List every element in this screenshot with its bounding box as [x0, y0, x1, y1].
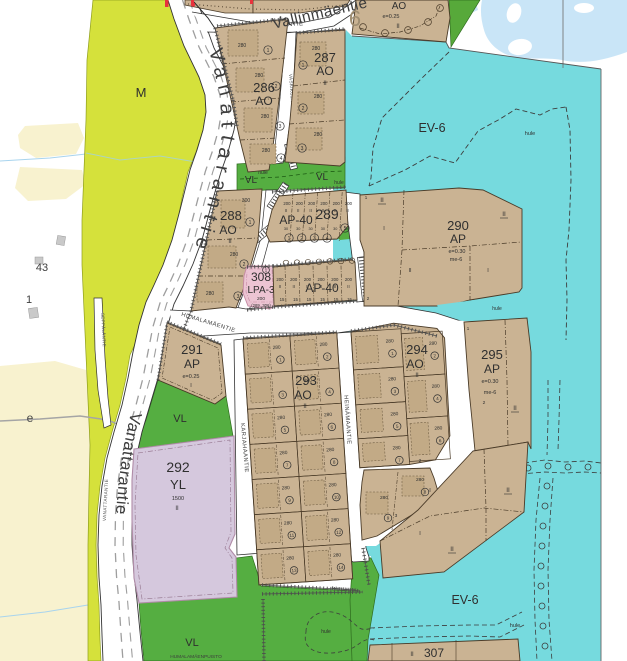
svg-text:13: 13 [291, 568, 297, 573]
svg-text:YL: YL [170, 477, 186, 492]
svg-text:II: II [506, 487, 510, 494]
svg-text:300: 300 [242, 198, 251, 204]
svg-text:8: 8 [424, 490, 427, 495]
svg-text:EV-6: EV-6 [418, 121, 445, 135]
svg-text:AO: AO [294, 388, 311, 402]
svg-text:295: 295 [481, 347, 503, 362]
svg-text:280: 280 [416, 477, 424, 483]
svg-text:II: II [502, 211, 506, 218]
svg-text:280: 280 [238, 43, 247, 49]
svg-text:280: 280 [319, 342, 328, 349]
svg-text:280: 280 [284, 520, 293, 527]
svg-text:hule: hule [321, 629, 331, 635]
svg-text:280: 280 [230, 252, 239, 258]
svg-text:II: II [408, 268, 412, 274]
svg-text:3: 3 [313, 236, 316, 242]
svg-text:280: 280 [328, 482, 337, 489]
svg-text:280: 280 [262, 148, 271, 154]
svg-text:280: 280 [206, 291, 215, 297]
svg-text:289: 289 [315, 206, 339, 222]
svg-text:280: 280 [324, 412, 333, 419]
svg-text:15: 15 [293, 297, 298, 302]
svg-text:30: 30 [308, 227, 312, 231]
svg-text:280: 280 [331, 517, 340, 524]
svg-text:280: 280 [434, 425, 443, 432]
svg-text:e=0.25: e=0.25 [383, 14, 400, 20]
svg-text:AP: AP [450, 232, 466, 246]
svg-text:VL: VL [245, 175, 258, 186]
svg-text:11: 11 [289, 533, 295, 538]
svg-text:15: 15 [307, 297, 312, 302]
svg-text:280: 280 [272, 345, 281, 352]
svg-text:4: 4 [326, 236, 329, 242]
svg-text:280: 280 [392, 445, 401, 452]
svg-text:me-6: me-6 [450, 257, 463, 263]
svg-text:1: 1 [267, 48, 270, 54]
svg-text:EV-6: EV-6 [451, 593, 478, 607]
svg-text:II: II [450, 546, 454, 553]
svg-text:30: 30 [296, 227, 300, 231]
svg-text:M: M [136, 85, 147, 100]
svg-text:280: 280 [429, 340, 438, 347]
svg-text:AP: AP [484, 362, 500, 376]
svg-text:280: 280 [333, 552, 342, 559]
svg-text:AO: AO [392, 1, 407, 12]
svg-text:AO: AO [406, 357, 423, 371]
svg-text:II: II [380, 197, 384, 204]
svg-text:II: II [346, 208, 348, 213]
svg-text:hule: hule [492, 306, 502, 312]
svg-text:280: 280 [386, 338, 395, 345]
svg-text:2: 2 [302, 106, 305, 112]
svg-text:280: 280 [286, 555, 295, 562]
svg-text:3: 3 [395, 513, 398, 519]
svg-text:2: 2 [300, 236, 303, 242]
svg-text:II: II [513, 405, 517, 412]
svg-text:AO: AO [255, 94, 272, 108]
svg-text:5: 5 [344, 226, 347, 232]
svg-text:9: 9 [387, 516, 390, 521]
svg-text:3: 3 [237, 294, 240, 300]
svg-text:290: 290 [447, 218, 469, 233]
svg-text:2: 2 [483, 400, 486, 406]
svg-text:e=0.25: e=0.25 [183, 374, 200, 380]
svg-text:14: 14 [338, 565, 344, 570]
svg-text:1: 1 [288, 236, 291, 242]
svg-text:AP: AP [184, 357, 200, 371]
svg-text:291: 291 [181, 342, 203, 357]
svg-text:12: 12 [336, 530, 342, 535]
svg-text:II: II [323, 81, 327, 87]
svg-text:1: 1 [302, 63, 305, 69]
svg-text:e=0.30: e=0.30 [482, 379, 499, 385]
svg-text:AO: AO [219, 223, 236, 237]
svg-text:1500: 1500 [172, 496, 184, 502]
svg-text:e=0.30: e=0.30 [449, 249, 466, 255]
svg-text:II: II [175, 506, 179, 512]
svg-text:280: 280 [255, 73, 264, 79]
svg-text:200: 200 [257, 296, 265, 302]
svg-text:292: 292 [166, 459, 190, 475]
svg-text:30: 30 [333, 227, 337, 231]
svg-text:293: 293 [295, 373, 317, 388]
svg-text:286: 286 [253, 80, 275, 95]
svg-text:II: II [396, 24, 400, 30]
svg-text:280: 280 [388, 376, 397, 383]
svg-text:3: 3 [301, 146, 304, 152]
svg-text:AO: AO [316, 64, 333, 78]
svg-text:II: II [347, 284, 349, 289]
svg-text:200: 200 [290, 277, 298, 282]
svg-text:II: II [228, 239, 232, 245]
svg-text:43: 43 [36, 262, 48, 274]
svg-text:VL: VL [185, 637, 198, 649]
svg-text:280: 280 [326, 447, 335, 454]
svg-text:280: 280 [390, 411, 399, 418]
svg-text:hule: hule [334, 180, 344, 186]
svg-text:me-6: me-6 [484, 390, 497, 396]
svg-text:280: 280 [432, 383, 441, 390]
svg-text:280: 280 [380, 495, 388, 501]
svg-text:II: II [279, 284, 281, 289]
svg-text:3: 3 [279, 124, 282, 130]
svg-text:2: 2 [419, 458, 422, 464]
svg-text:hule: hule [525, 131, 535, 137]
svg-text:AP-40: AP-40 [305, 281, 339, 295]
svg-text:AP-40: AP-40 [279, 213, 313, 227]
svg-text:200: 200 [276, 277, 284, 282]
svg-text:4: 4 [280, 156, 283, 162]
svg-text:2: 2 [243, 262, 246, 268]
svg-text:280: 280 [261, 114, 270, 120]
svg-text:200: 200 [283, 201, 291, 206]
svg-text:1: 1 [249, 220, 252, 226]
svg-text:II: II [293, 284, 295, 289]
svg-text:287: 287 [314, 50, 336, 65]
svg-text:VL: VL [173, 413, 186, 425]
svg-text:15: 15 [280, 297, 285, 302]
svg-text:1: 1 [26, 294, 32, 306]
svg-text:LPA-3: LPA-3 [247, 285, 274, 296]
svg-text:200: 200 [296, 201, 304, 206]
svg-text:2: 2 [275, 84, 278, 90]
svg-text:200: 200 [345, 201, 353, 206]
svg-text:10: 10 [334, 495, 340, 500]
svg-text:280: 280 [279, 450, 288, 457]
svg-text:e: e [27, 411, 34, 425]
svg-text:II: II [415, 373, 419, 379]
svg-text:30: 30 [284, 227, 288, 231]
svg-text:294: 294 [406, 342, 428, 357]
svg-text:VL: VL [316, 172, 329, 183]
svg-text:II: II [303, 404, 307, 410]
svg-text:II: II [410, 652, 414, 658]
svg-text:30: 30 [321, 227, 325, 231]
svg-text:15: 15 [320, 297, 325, 302]
svg-text:280: 280 [277, 415, 286, 422]
svg-text:hule: hule [510, 623, 520, 629]
svg-text:200: 200 [345, 277, 353, 282]
svg-text:15: 15 [334, 297, 339, 302]
svg-text:280: 280 [282, 485, 291, 492]
svg-text:280: 280 [314, 94, 323, 100]
svg-text:HUMALAMÄENPUISTO: HUMALAMÄENPUISTO [170, 653, 222, 660]
svg-text:280: 280 [314, 132, 323, 138]
svg-text:307: 307 [424, 646, 444, 660]
